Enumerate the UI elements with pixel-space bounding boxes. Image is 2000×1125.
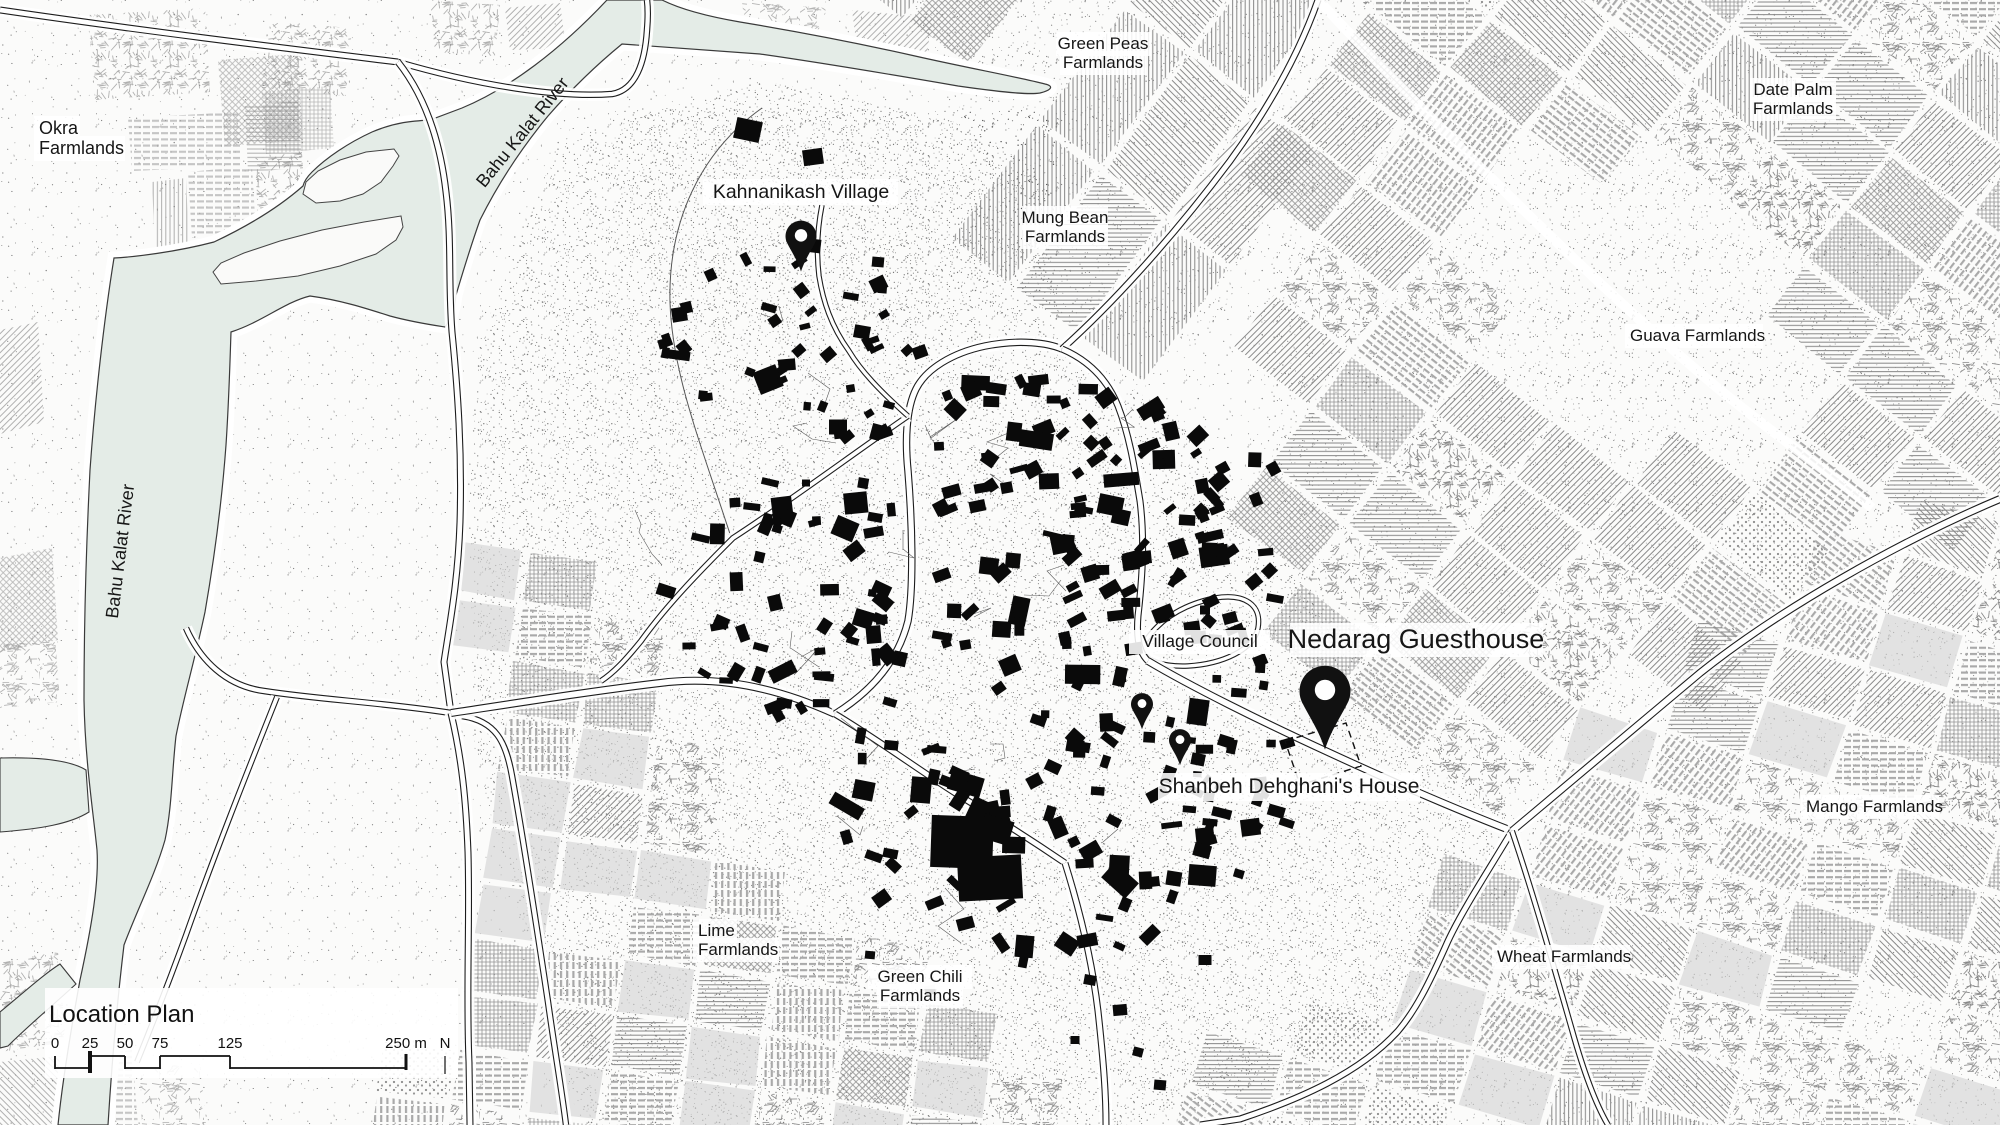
svg-text:Lime: Lime	[698, 921, 735, 940]
svg-text:Okra: Okra	[39, 118, 79, 138]
svg-text:Village Council: Village Council	[1142, 631, 1257, 651]
svg-text:Shanbeh Dehghani's House: Shanbeh Dehghani's House	[1159, 775, 1420, 798]
svg-text:Farmlands: Farmlands	[1025, 227, 1105, 246]
svg-text:Kahnanikash Village: Kahnanikash Village	[713, 181, 889, 203]
svg-text:Farmlands: Farmlands	[1753, 99, 1833, 118]
svg-text:Mango Farmlands: Mango Farmlands	[1806, 797, 1943, 816]
svg-text:75: 75	[152, 1035, 169, 1052]
svg-text:50: 50	[117, 1035, 134, 1052]
svg-text:125: 125	[217, 1035, 242, 1052]
svg-text:Wheat Farmlands: Wheat Farmlands	[1497, 947, 1631, 966]
svg-text:N: N	[440, 1035, 451, 1052]
svg-text:Mung Bean: Mung Bean	[1022, 208, 1109, 227]
svg-text:Date Palm: Date Palm	[1753, 80, 1832, 99]
svg-text:Farmlands: Farmlands	[39, 138, 124, 158]
svg-text:Farmlands: Farmlands	[880, 986, 960, 1005]
svg-text:Green Chili: Green Chili	[877, 967, 962, 986]
svg-text:Farmlands: Farmlands	[698, 940, 778, 959]
svg-text:0: 0	[51, 1035, 59, 1052]
svg-text:Nedarag Guesthouse: Nedarag Guesthouse	[1288, 624, 1545, 654]
svg-text:25: 25	[82, 1035, 99, 1052]
svg-text:Location Plan: Location Plan	[49, 1001, 194, 1028]
svg-text:Green Peas: Green Peas	[1058, 34, 1149, 53]
svg-text:Guava Farmlands: Guava Farmlands	[1630, 326, 1765, 345]
svg-text:250 m: 250 m	[385, 1035, 427, 1052]
svg-text:Farmlands: Farmlands	[1063, 53, 1143, 72]
